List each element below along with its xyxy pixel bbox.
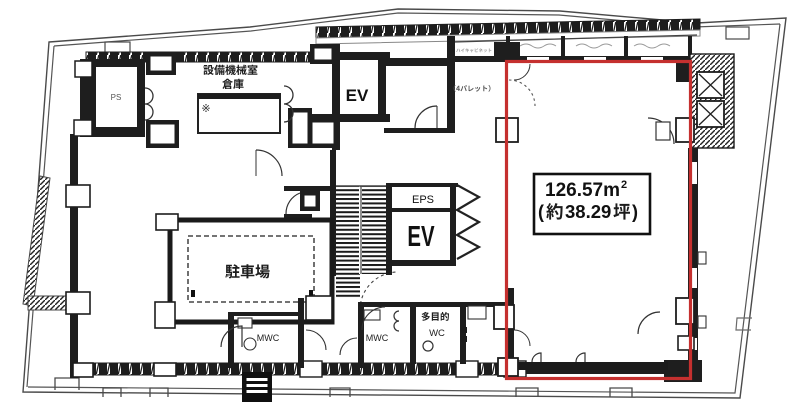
svg-text:38.29: 38.29: [565, 201, 611, 222]
svg-text:): ): [632, 202, 638, 222]
svg-text:EPS: EPS: [412, 194, 434, 206]
svg-text:MWC: MWC: [366, 333, 389, 343]
svg-text:MWC: MWC: [257, 333, 280, 343]
svg-text:EV: EV: [346, 86, 369, 105]
svg-text:PS: PS: [111, 93, 122, 102]
svg-text:WC: WC: [429, 328, 445, 339]
svg-text:(: (: [538, 202, 544, 222]
svg-text:EV: EV: [407, 221, 434, 253]
svg-text:126.57m: 126.57m: [545, 180, 620, 201]
svg-text:2: 2: [621, 179, 627, 191]
svg-text:※: ※: [201, 103, 210, 115]
